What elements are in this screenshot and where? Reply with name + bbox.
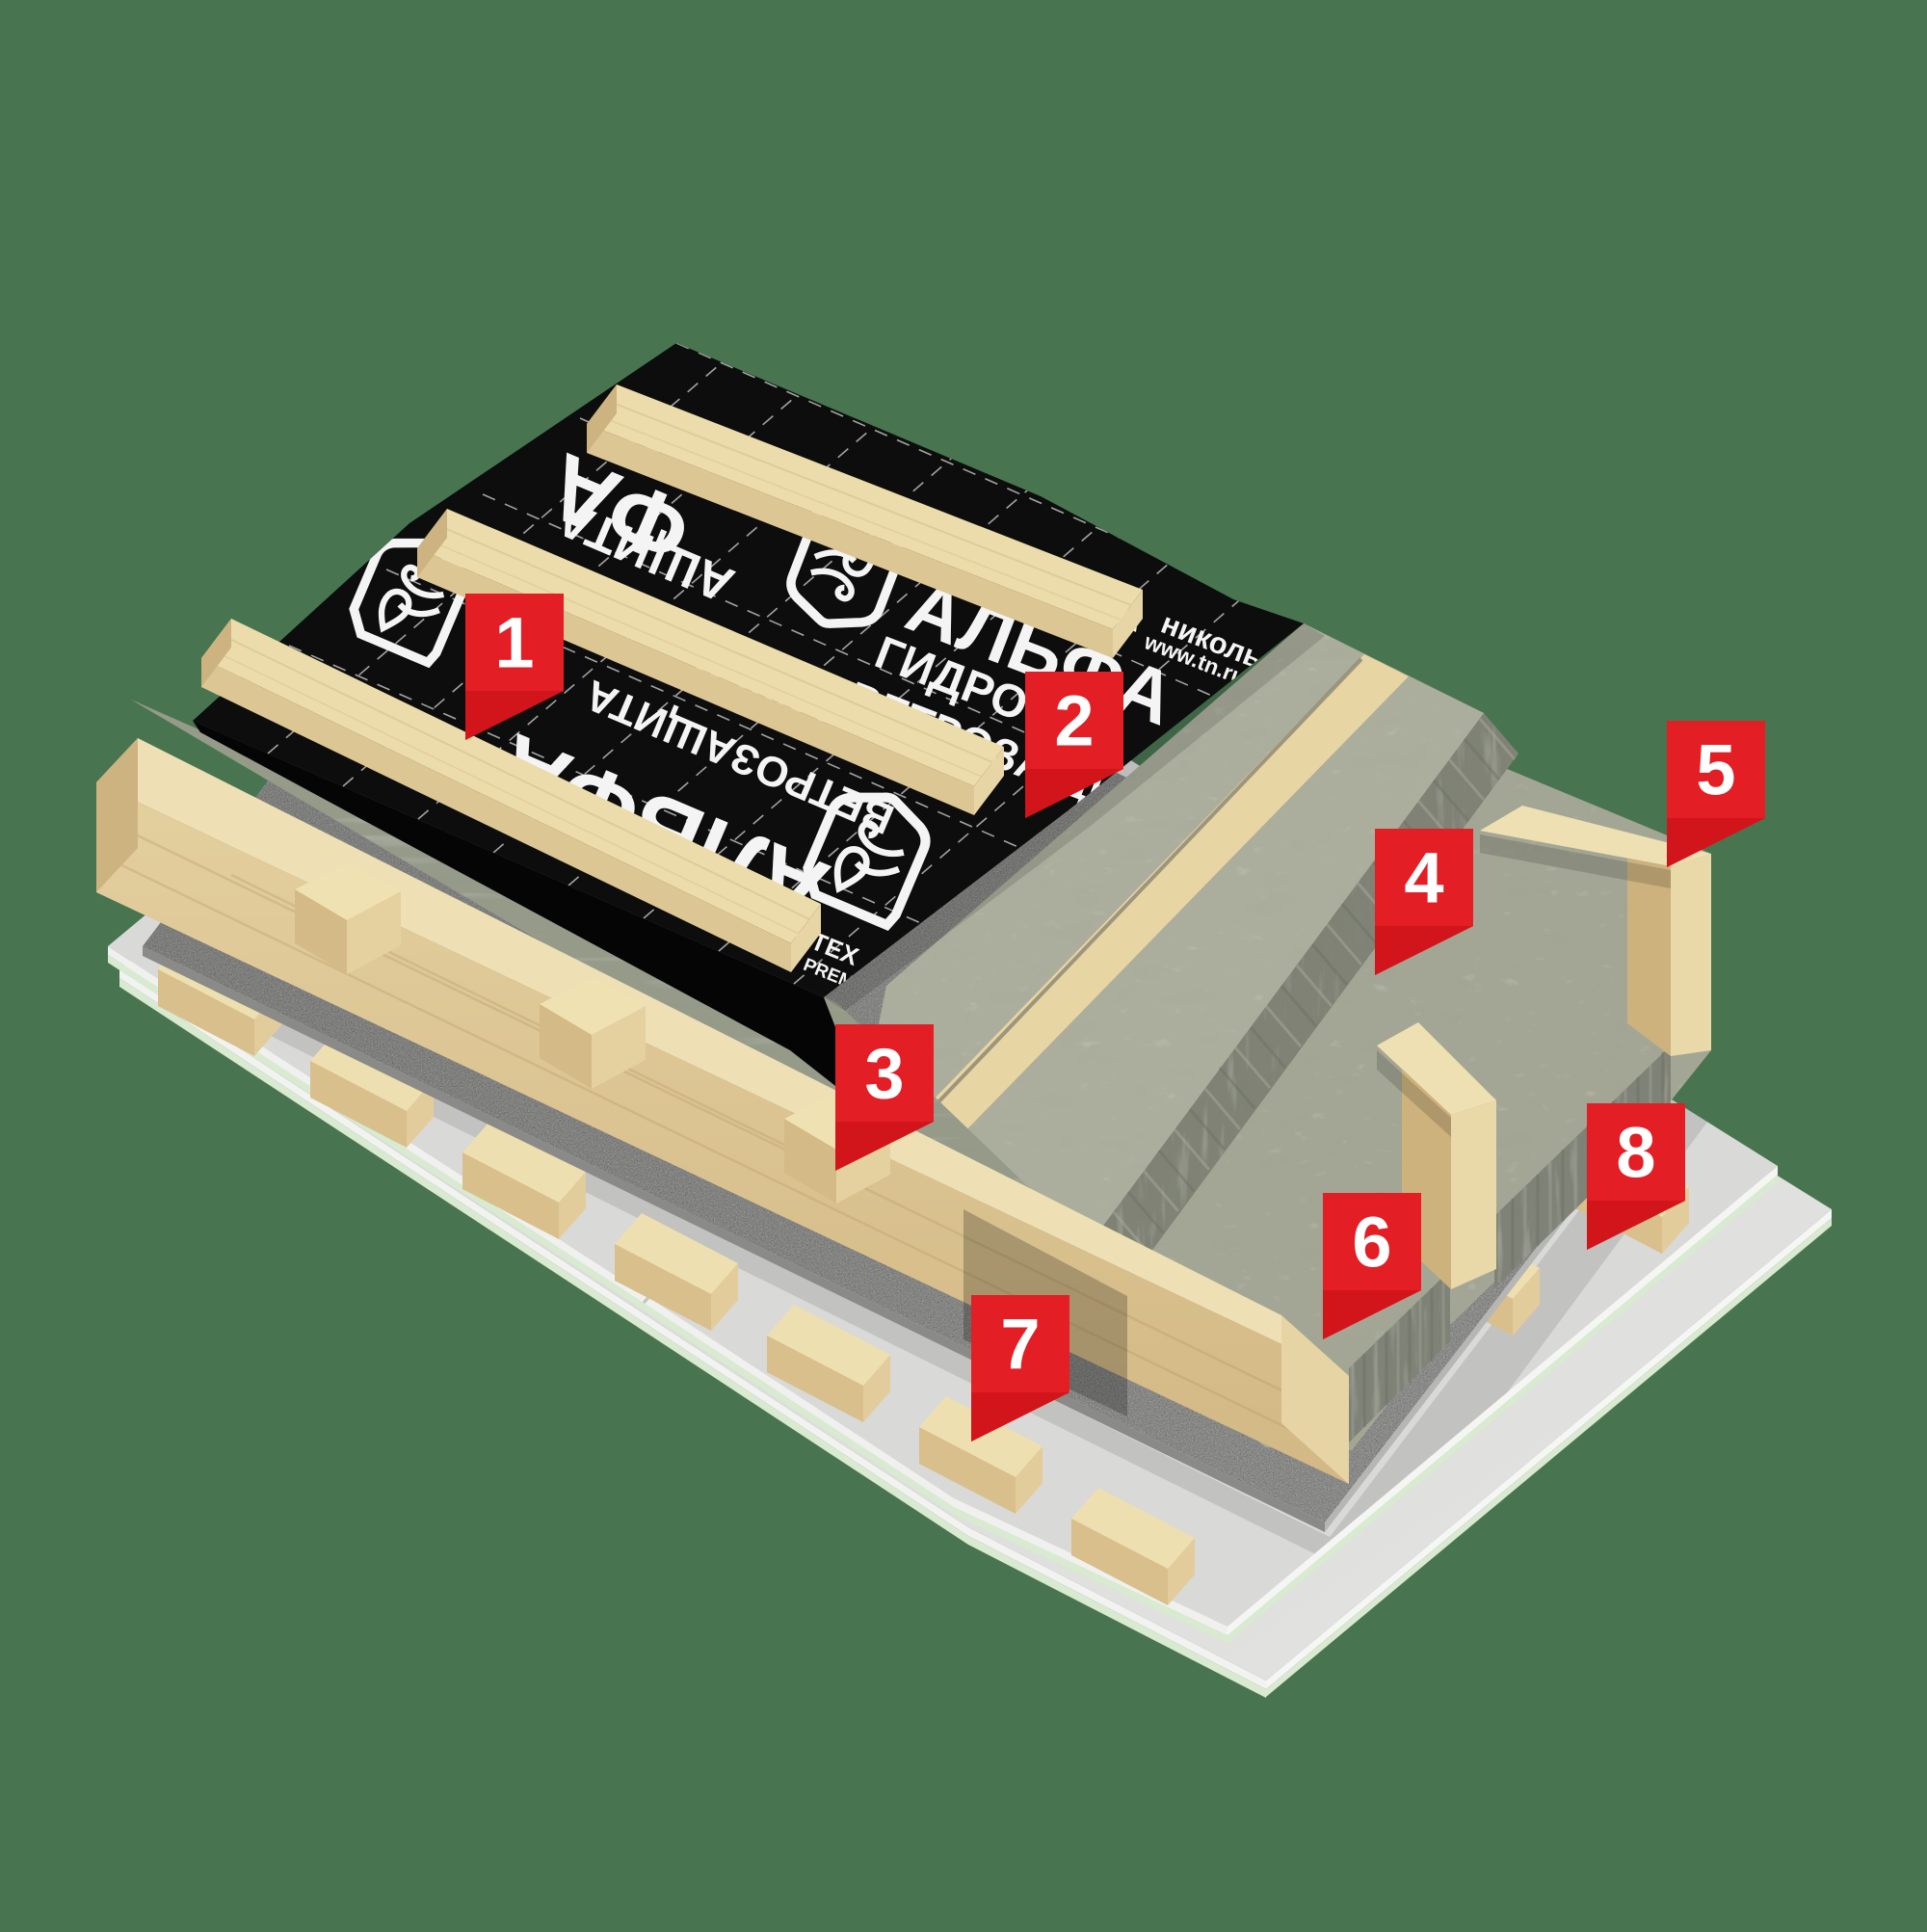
svg-text:5: 5 [1696, 730, 1735, 810]
svg-text:1: 1 [494, 603, 534, 683]
svg-text:7: 7 [1000, 1305, 1040, 1385]
svg-text:6: 6 [1352, 1203, 1391, 1283]
svg-text:4: 4 [1404, 838, 1443, 918]
svg-text:8: 8 [1616, 1113, 1655, 1193]
svg-text:2: 2 [1054, 681, 1094, 761]
svg-text:3: 3 [864, 1034, 904, 1114]
